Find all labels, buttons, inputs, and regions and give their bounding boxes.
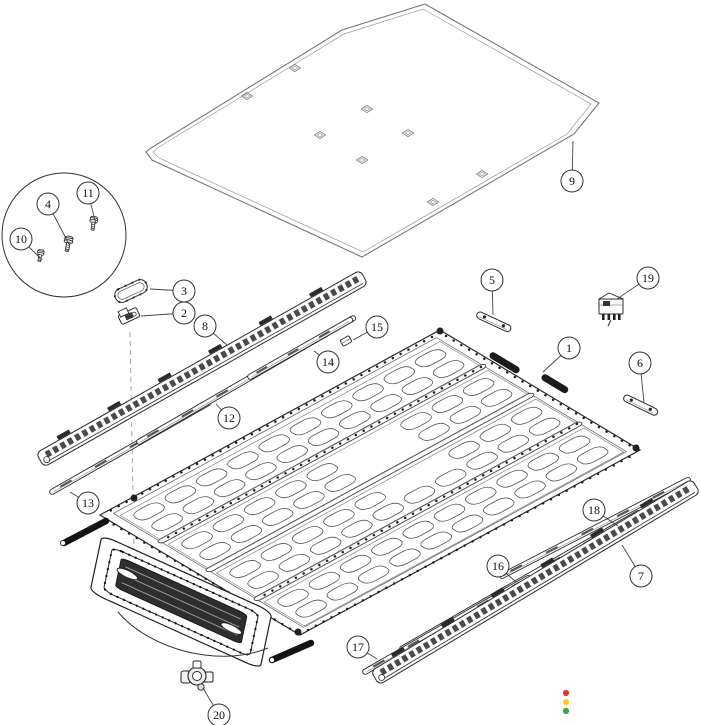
green-status-dot <box>563 708 569 714</box>
callout-19: 19 <box>617 267 659 299</box>
callout-number: 4 <box>45 197 51 211</box>
callout-number: 20 <box>213 708 225 722</box>
bracket-part-2 <box>116 304 140 325</box>
callout-6: 6 <box>629 352 651 403</box>
callout-9: 9 <box>561 141 583 192</box>
handle-bracket-part-6 <box>622 394 658 417</box>
callout-number: 8 <box>202 319 208 333</box>
top-cover-panel <box>146 4 599 257</box>
callout-number: 15 <box>371 320 383 334</box>
callout-14: 14 <box>314 351 339 373</box>
connector-part-19 <box>599 293 623 326</box>
callout-number: 13 <box>82 496 94 510</box>
callout-number: 3 <box>181 284 187 298</box>
callout-number: 6 <box>637 356 643 370</box>
callout-number: 1 <box>566 341 572 355</box>
callout-number: 9 <box>569 174 575 188</box>
yellow-status-dot <box>563 699 569 705</box>
callout-17: 17 <box>347 636 377 659</box>
clip-part-15 <box>340 335 352 346</box>
callout-number: 14 <box>322 355 334 369</box>
module-terminal-rod-right <box>269 643 311 663</box>
callout-5: 5 <box>481 269 503 315</box>
callout-7: 7 <box>622 545 652 587</box>
callout-3: 3 <box>150 280 195 302</box>
callout-number: 19 <box>642 271 654 285</box>
callout-number: 2 <box>181 306 187 320</box>
callout-number: 7 <box>638 569 644 583</box>
callout-number: 12 <box>223 411 235 425</box>
module-terminal-rod-left <box>60 521 106 546</box>
callout-number: 17 <box>352 640 364 654</box>
coolant-pump-part-20 <box>181 661 213 690</box>
callout-12: 12 <box>216 404 240 429</box>
exploded-parts-diagram-page: 1234567891011121314151617181920 <box>0 0 701 725</box>
callout-8: 8 <box>194 315 227 345</box>
callout-15: 15 <box>353 316 388 340</box>
callout-number: 5 <box>489 273 495 287</box>
status-dots <box>563 690 569 714</box>
callout-13: 13 <box>70 492 99 514</box>
gasket-part-3 <box>113 277 150 304</box>
callout-2: 2 <box>141 302 195 324</box>
red-status-dot <box>563 690 569 696</box>
callout-number: 16 <box>492 559 504 573</box>
exploded-parts-diagram: 1234567891011121314151617181920 <box>0 0 701 725</box>
callout-number: 10 <box>15 232 27 246</box>
callout-number: 11 <box>82 186 94 200</box>
callout-20: 20 <box>203 688 230 725</box>
callout-1: 1 <box>543 337 580 372</box>
callout-number: 18 <box>588 503 600 517</box>
handle-bracket-part-5 <box>476 311 512 333</box>
